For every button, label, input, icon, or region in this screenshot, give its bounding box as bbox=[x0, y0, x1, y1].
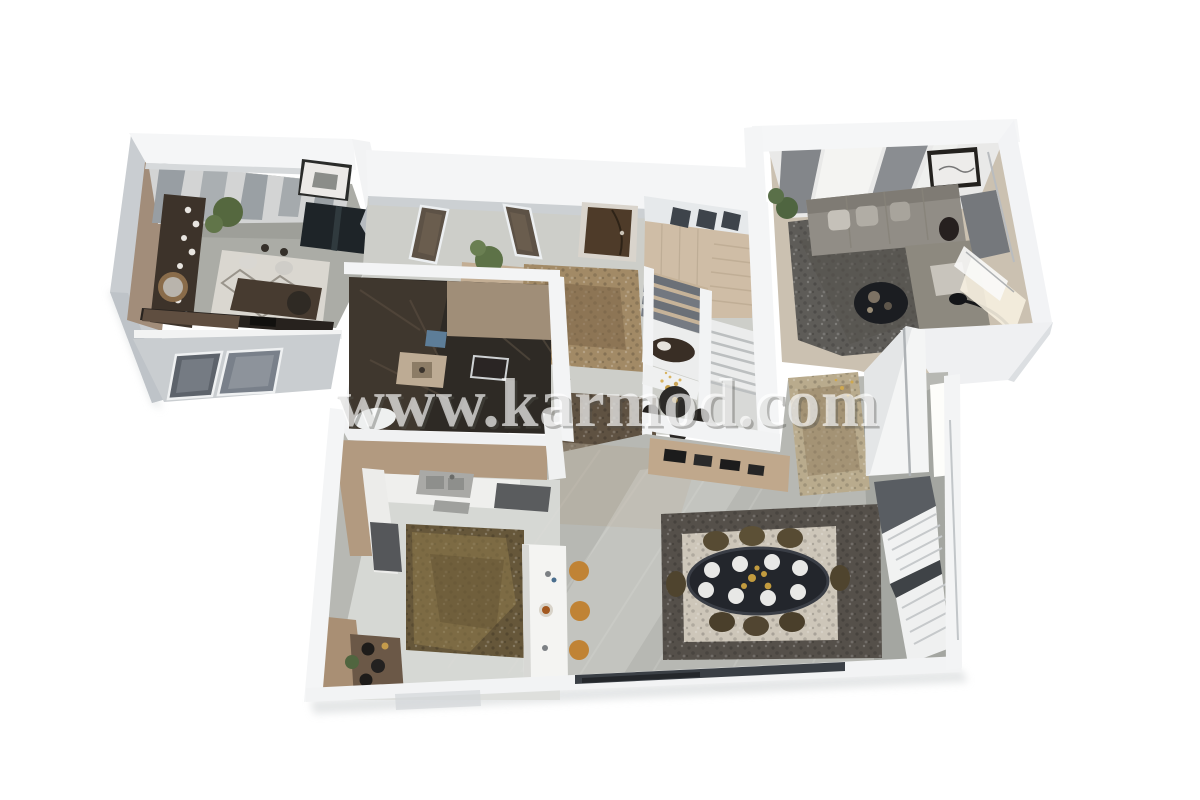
svg-text:www.karmod.com: www.karmod.com bbox=[335, 365, 879, 441]
